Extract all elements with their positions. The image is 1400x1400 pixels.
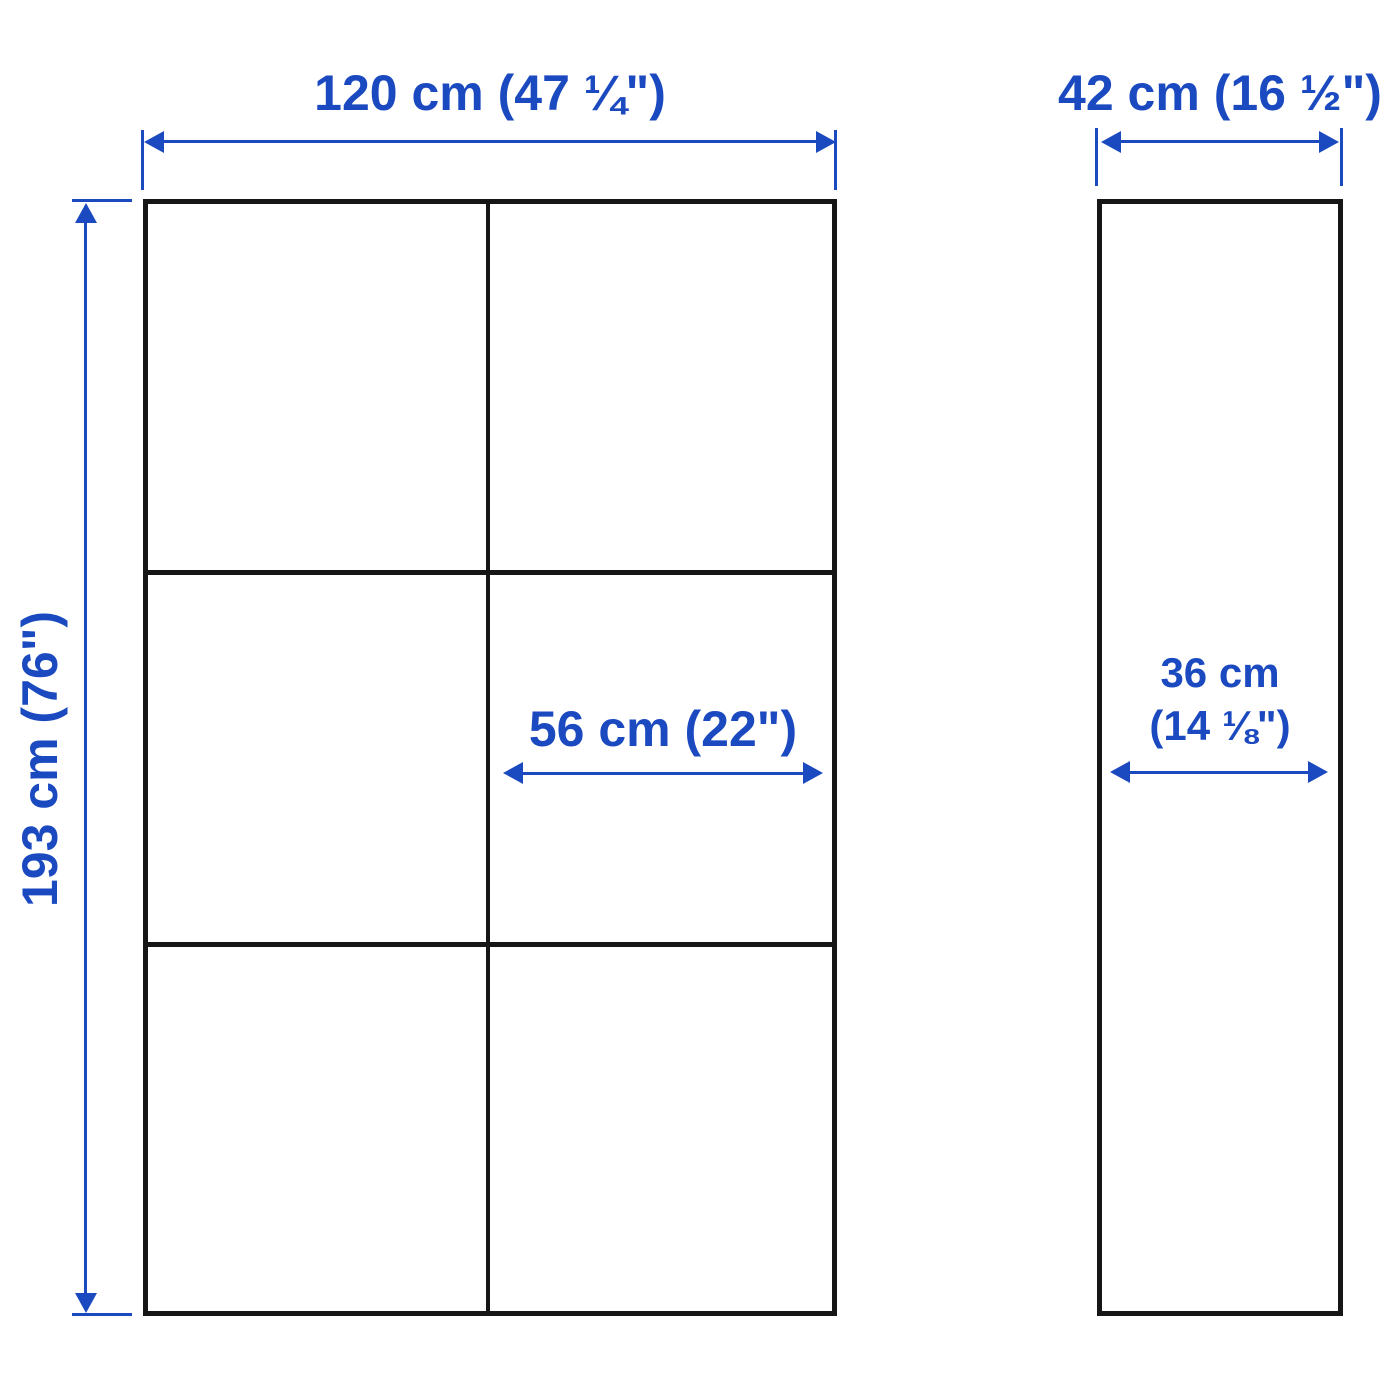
front-width-arrowhead-left-icon: [144, 131, 164, 153]
front-width-dimension-label: 120 cm (47 ¼"): [143, 66, 837, 121]
front-height-dimension-label: 193 cm (76"): [12, 459, 68, 1059]
front-view-shelf-divider-top: [148, 570, 832, 575]
side-width-arrowhead-right-icon: [1319, 131, 1339, 153]
front-view-vertical-divider: [486, 204, 490, 1311]
side-width-extension-line-left: [1095, 128, 1098, 186]
side-width-dimension-label: 42 cm (16 ½"): [1040, 66, 1400, 121]
side-depth-dimension-label-line2: (14 ⅛"): [1097, 699, 1343, 752]
front-view-outline: [143, 199, 837, 1316]
compartment-width-dimension-label: 56 cm (22"): [503, 702, 823, 757]
front-height-arrowhead-top-icon: [75, 203, 97, 223]
side-width-dimension-line: [1108, 140, 1332, 143]
side-width-extension-line-right: [1340, 128, 1343, 186]
compartment-width-dimension-line: [516, 772, 810, 775]
front-width-arrowhead-right-icon: [816, 131, 836, 153]
front-width-dimension-line: [150, 140, 830, 143]
front-height-extension-line-bottom: [72, 1313, 132, 1316]
side-width-arrowhead-left-icon: [1101, 131, 1121, 153]
dimension-diagram: 120 cm (47 ¼") 42 cm (16 ½") 193 cm (76"…: [0, 0, 1400, 1400]
side-depth-dimension-line: [1126, 771, 1312, 774]
compartment-width-arrowhead-right-icon: [803, 762, 823, 784]
side-depth-dimension-label: 36 cm (14 ⅛"): [1097, 646, 1343, 753]
front-height-dimension-line: [84, 212, 87, 1304]
compartment-width-arrowhead-left-icon: [503, 762, 523, 784]
front-height-extension-line-top: [72, 199, 132, 202]
front-height-arrowhead-bottom-icon: [75, 1293, 97, 1313]
side-depth-dimension-label-line1: 36 cm: [1097, 646, 1343, 699]
side-depth-arrowhead-left-icon: [1110, 761, 1130, 783]
side-depth-arrowhead-right-icon: [1308, 761, 1328, 783]
side-view-outline: [1097, 199, 1343, 1316]
front-view-shelf-divider-bottom: [148, 942, 832, 947]
